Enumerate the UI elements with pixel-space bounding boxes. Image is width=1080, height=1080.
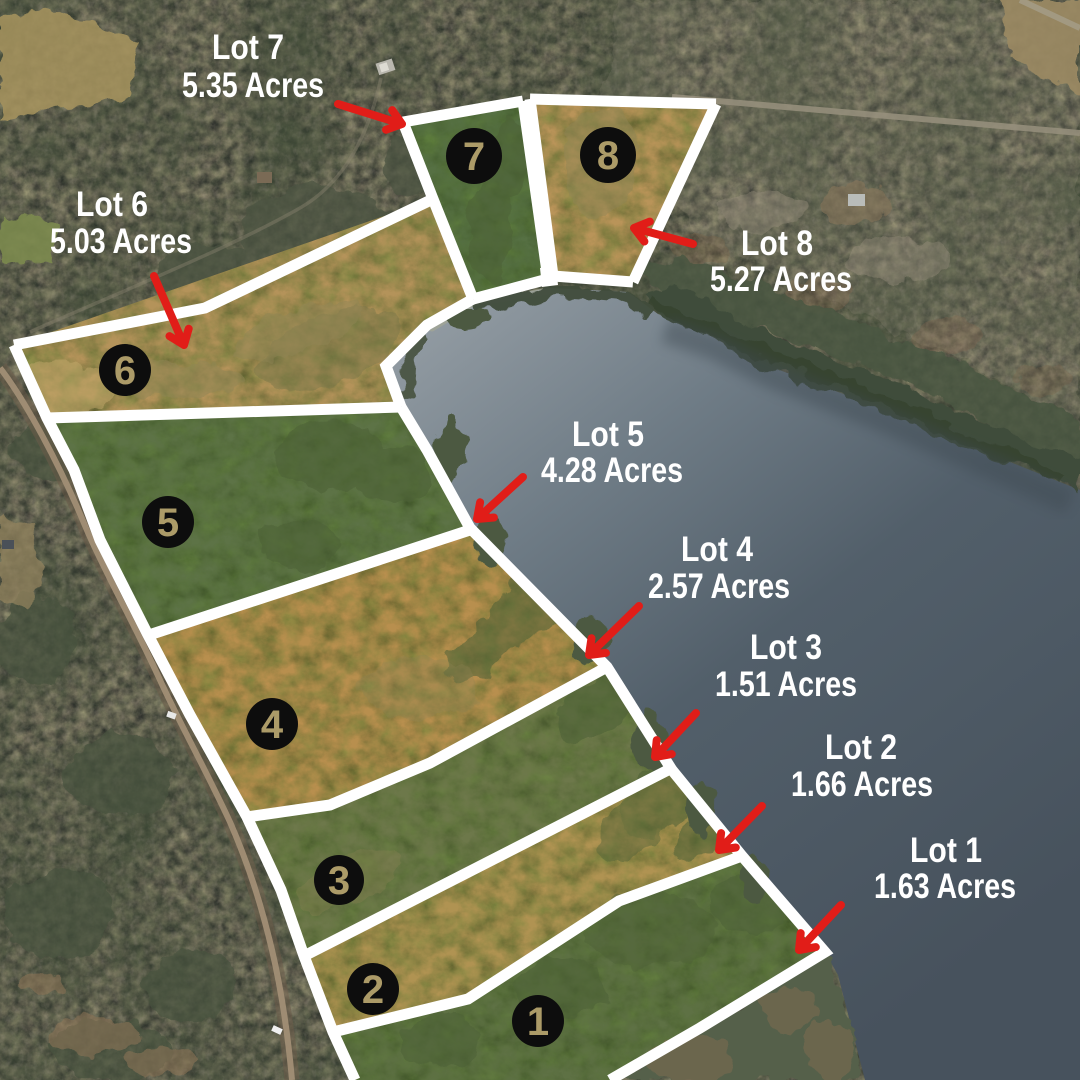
svg-text:Lot 4: Lot 4 <box>681 530 753 569</box>
svg-text:4: 4 <box>261 703 284 747</box>
svg-text:1.66 Acres: 1.66 Acres <box>791 765 933 804</box>
svg-text:6: 6 <box>114 349 136 393</box>
svg-text:1.51 Acres: 1.51 Acres <box>715 665 857 704</box>
svg-text:5.35 Acres: 5.35 Acres <box>182 66 324 105</box>
svg-text:Lot 5: Lot 5 <box>572 415 644 454</box>
svg-text:Lot 1: Lot 1 <box>910 831 982 870</box>
svg-text:8: 8 <box>597 134 619 178</box>
svg-text:1.63 Acres: 1.63 Acres <box>874 867 1016 906</box>
svg-text:Lot 3: Lot 3 <box>750 628 822 667</box>
svg-text:Lot 8: Lot 8 <box>741 224 813 263</box>
svg-text:3: 3 <box>328 859 350 903</box>
svg-text:5.03 Acres: 5.03 Acres <box>50 222 192 261</box>
svg-text:Lot 2: Lot 2 <box>825 728 897 767</box>
svg-text:1: 1 <box>527 1000 549 1044</box>
svg-text:Lot 7: Lot 7 <box>212 28 284 67</box>
svg-text:5: 5 <box>157 501 179 545</box>
svg-text:5.27 Acres: 5.27 Acres <box>710 260 852 299</box>
svg-text:2.57 Acres: 2.57 Acres <box>648 567 790 606</box>
svg-text:4.28 Acres: 4.28 Acres <box>541 451 683 490</box>
svg-text:2: 2 <box>362 968 384 1012</box>
svg-text:7: 7 <box>463 135 485 179</box>
svg-text:Lot 6: Lot 6 <box>76 185 148 224</box>
